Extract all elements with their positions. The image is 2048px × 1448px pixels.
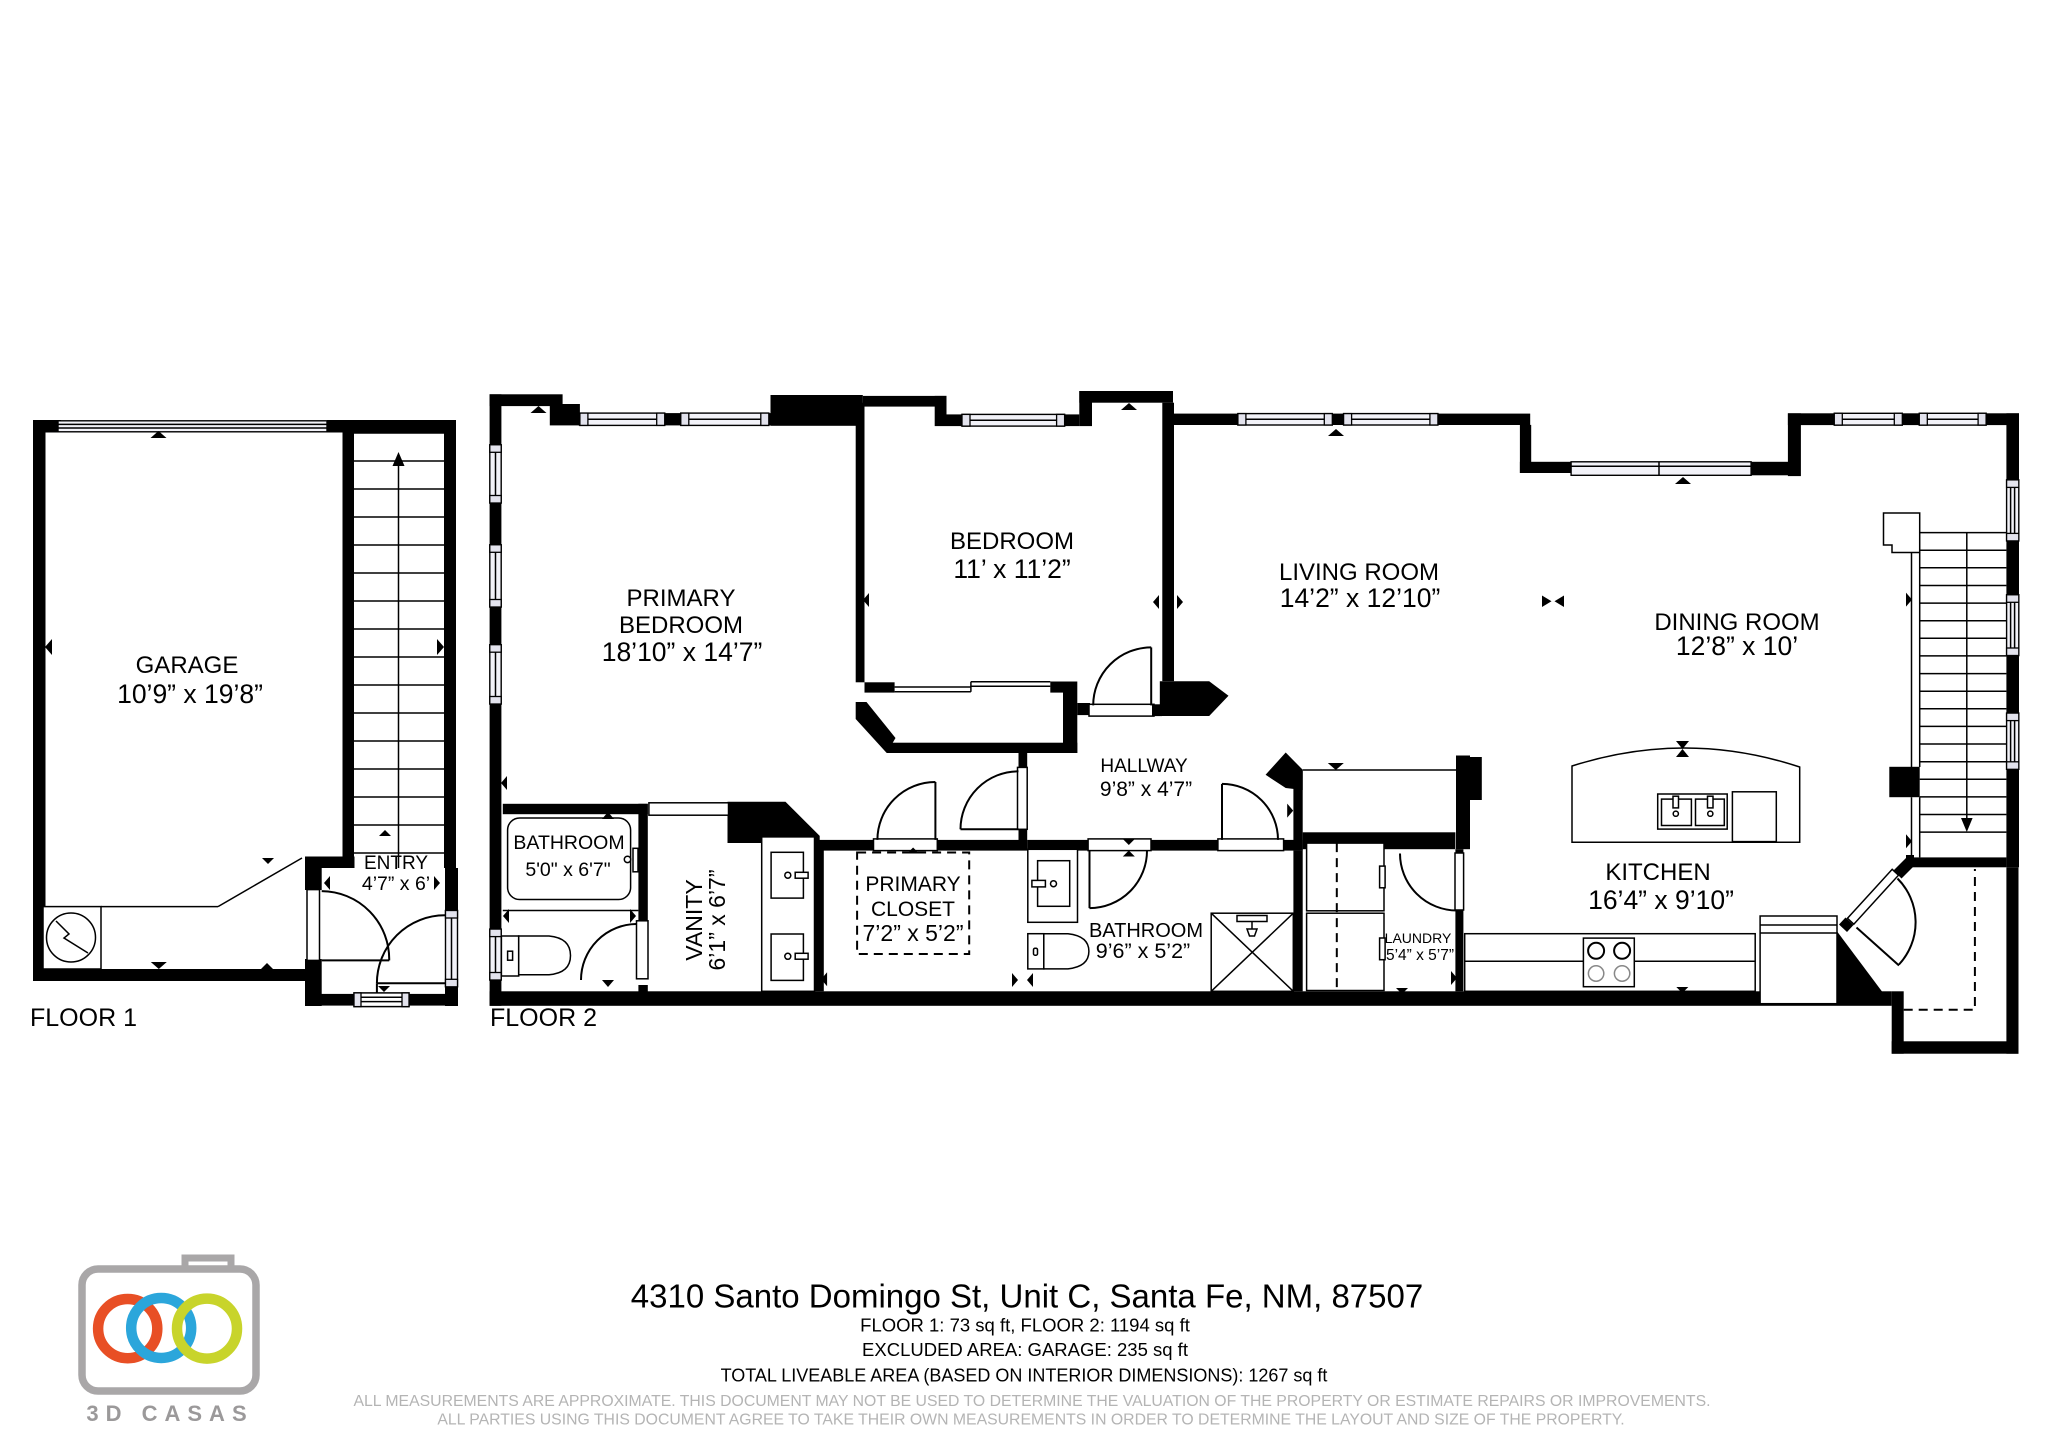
- svg-text:GARAGE: GARAGE: [136, 652, 239, 679]
- svg-text:9’6” x 5’2”: 9’6” x 5’2”: [1096, 939, 1190, 963]
- svg-text:CLOSET: CLOSET: [871, 898, 955, 921]
- svg-text:ALL MEASUREMENTS ARE APPROXIMA: ALL MEASUREMENTS ARE APPROXIMATE. THIS D…: [353, 1393, 1710, 1410]
- svg-text:EXCLUDED AREA: GARAGE: 235 sq: EXCLUDED AREA: GARAGE: 235 sq ft: [862, 1339, 1188, 1360]
- svg-text:PRIMARY: PRIMARY: [627, 585, 736, 612]
- svg-text:12’8” x 10’: 12’8” x 10’: [1676, 631, 1798, 661]
- svg-text:7’2” x 5’2”: 7’2” x 5’2”: [863, 920, 964, 946]
- svg-text:HALLWAY: HALLWAY: [1100, 756, 1188, 777]
- svg-text:FLOOR 1: FLOOR 1: [30, 1004, 137, 1032]
- svg-text:FLOOR 2: FLOOR 2: [490, 1004, 597, 1032]
- svg-text:14’2” x 12’10”: 14’2” x 12’10”: [1280, 583, 1441, 613]
- svg-text:LIVING ROOM: LIVING ROOM: [1279, 559, 1439, 586]
- svg-text:BATHROOM: BATHROOM: [513, 832, 624, 854]
- svg-text:9’8” x 4’7”: 9’8” x 4’7”: [1100, 778, 1192, 801]
- svg-text:4’7” x 6’: 4’7” x 6’: [362, 873, 430, 895]
- svg-text:4310 Santo Domingo St, Unit C,: 4310 Santo Domingo St, Unit C, Santa Fe,…: [631, 1278, 1423, 1315]
- svg-text:ENTRY: ENTRY: [364, 853, 428, 874]
- svg-text:5’4” x 5’7”: 5’4” x 5’7”: [1386, 947, 1454, 964]
- svg-text:5'0" x 6'7": 5'0" x 6'7": [525, 859, 610, 881]
- svg-text:KITCHEN: KITCHEN: [1605, 859, 1710, 886]
- svg-text:PRIMARY: PRIMARY: [865, 873, 960, 896]
- svg-text:BEDROOM: BEDROOM: [619, 612, 743, 639]
- svg-text:3D CASAS: 3D CASAS: [86, 1401, 253, 1426]
- svg-text:11’ x 11’2”: 11’ x 11’2”: [953, 554, 1070, 584]
- svg-text:FLOOR 1: 73 sq ft, FLOOR 2: 11: FLOOR 1: 73 sq ft, FLOOR 2: 1194 sq ft: [860, 1315, 1190, 1336]
- svg-text:BEDROOM: BEDROOM: [950, 528, 1074, 555]
- svg-text:LAUNDRY: LAUNDRY: [1385, 930, 1452, 946]
- svg-text:18’10” x 14’7”: 18’10” x 14’7”: [602, 637, 763, 667]
- svg-text:6’1” x 6’7”: 6’1” x 6’7”: [704, 870, 730, 971]
- svg-text:16’4” x 9’10”: 16’4” x 9’10”: [1588, 885, 1734, 915]
- svg-text:ALL PARTIES USING THIS DOCUMEN: ALL PARTIES USING THIS DOCUMENT AGREE TO…: [437, 1412, 1624, 1429]
- svg-text:TOTAL LIVEABLE AREA (BASED ON: TOTAL LIVEABLE AREA (BASED ON INTERIOR D…: [721, 1366, 1328, 1386]
- svg-text:10’9” x 19’8”: 10’9” x 19’8”: [117, 679, 263, 709]
